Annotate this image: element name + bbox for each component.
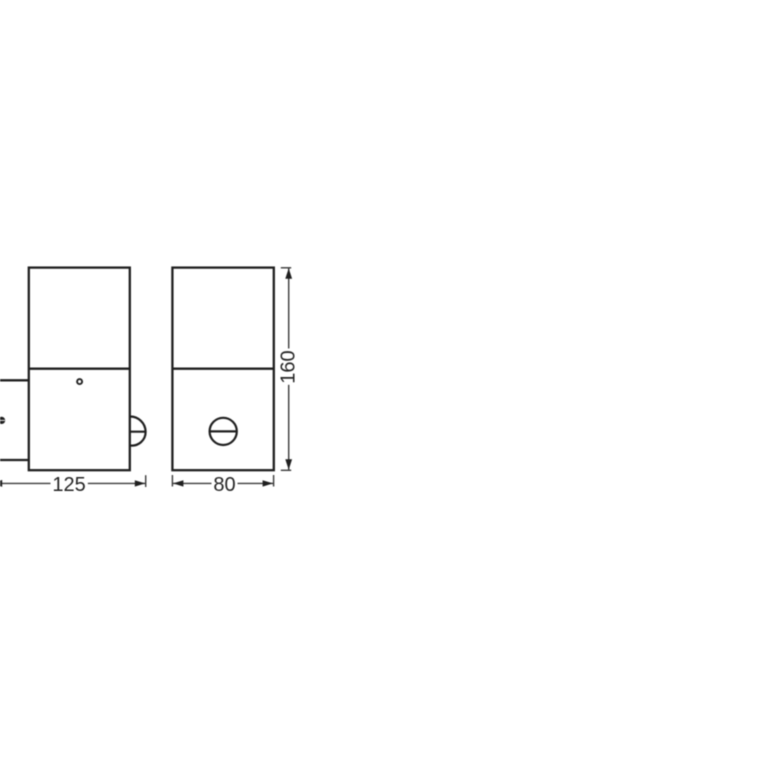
svg-text:160: 160 [277,350,299,383]
svg-text:80: 80 [213,474,235,496]
svg-text:125: 125 [52,474,85,496]
